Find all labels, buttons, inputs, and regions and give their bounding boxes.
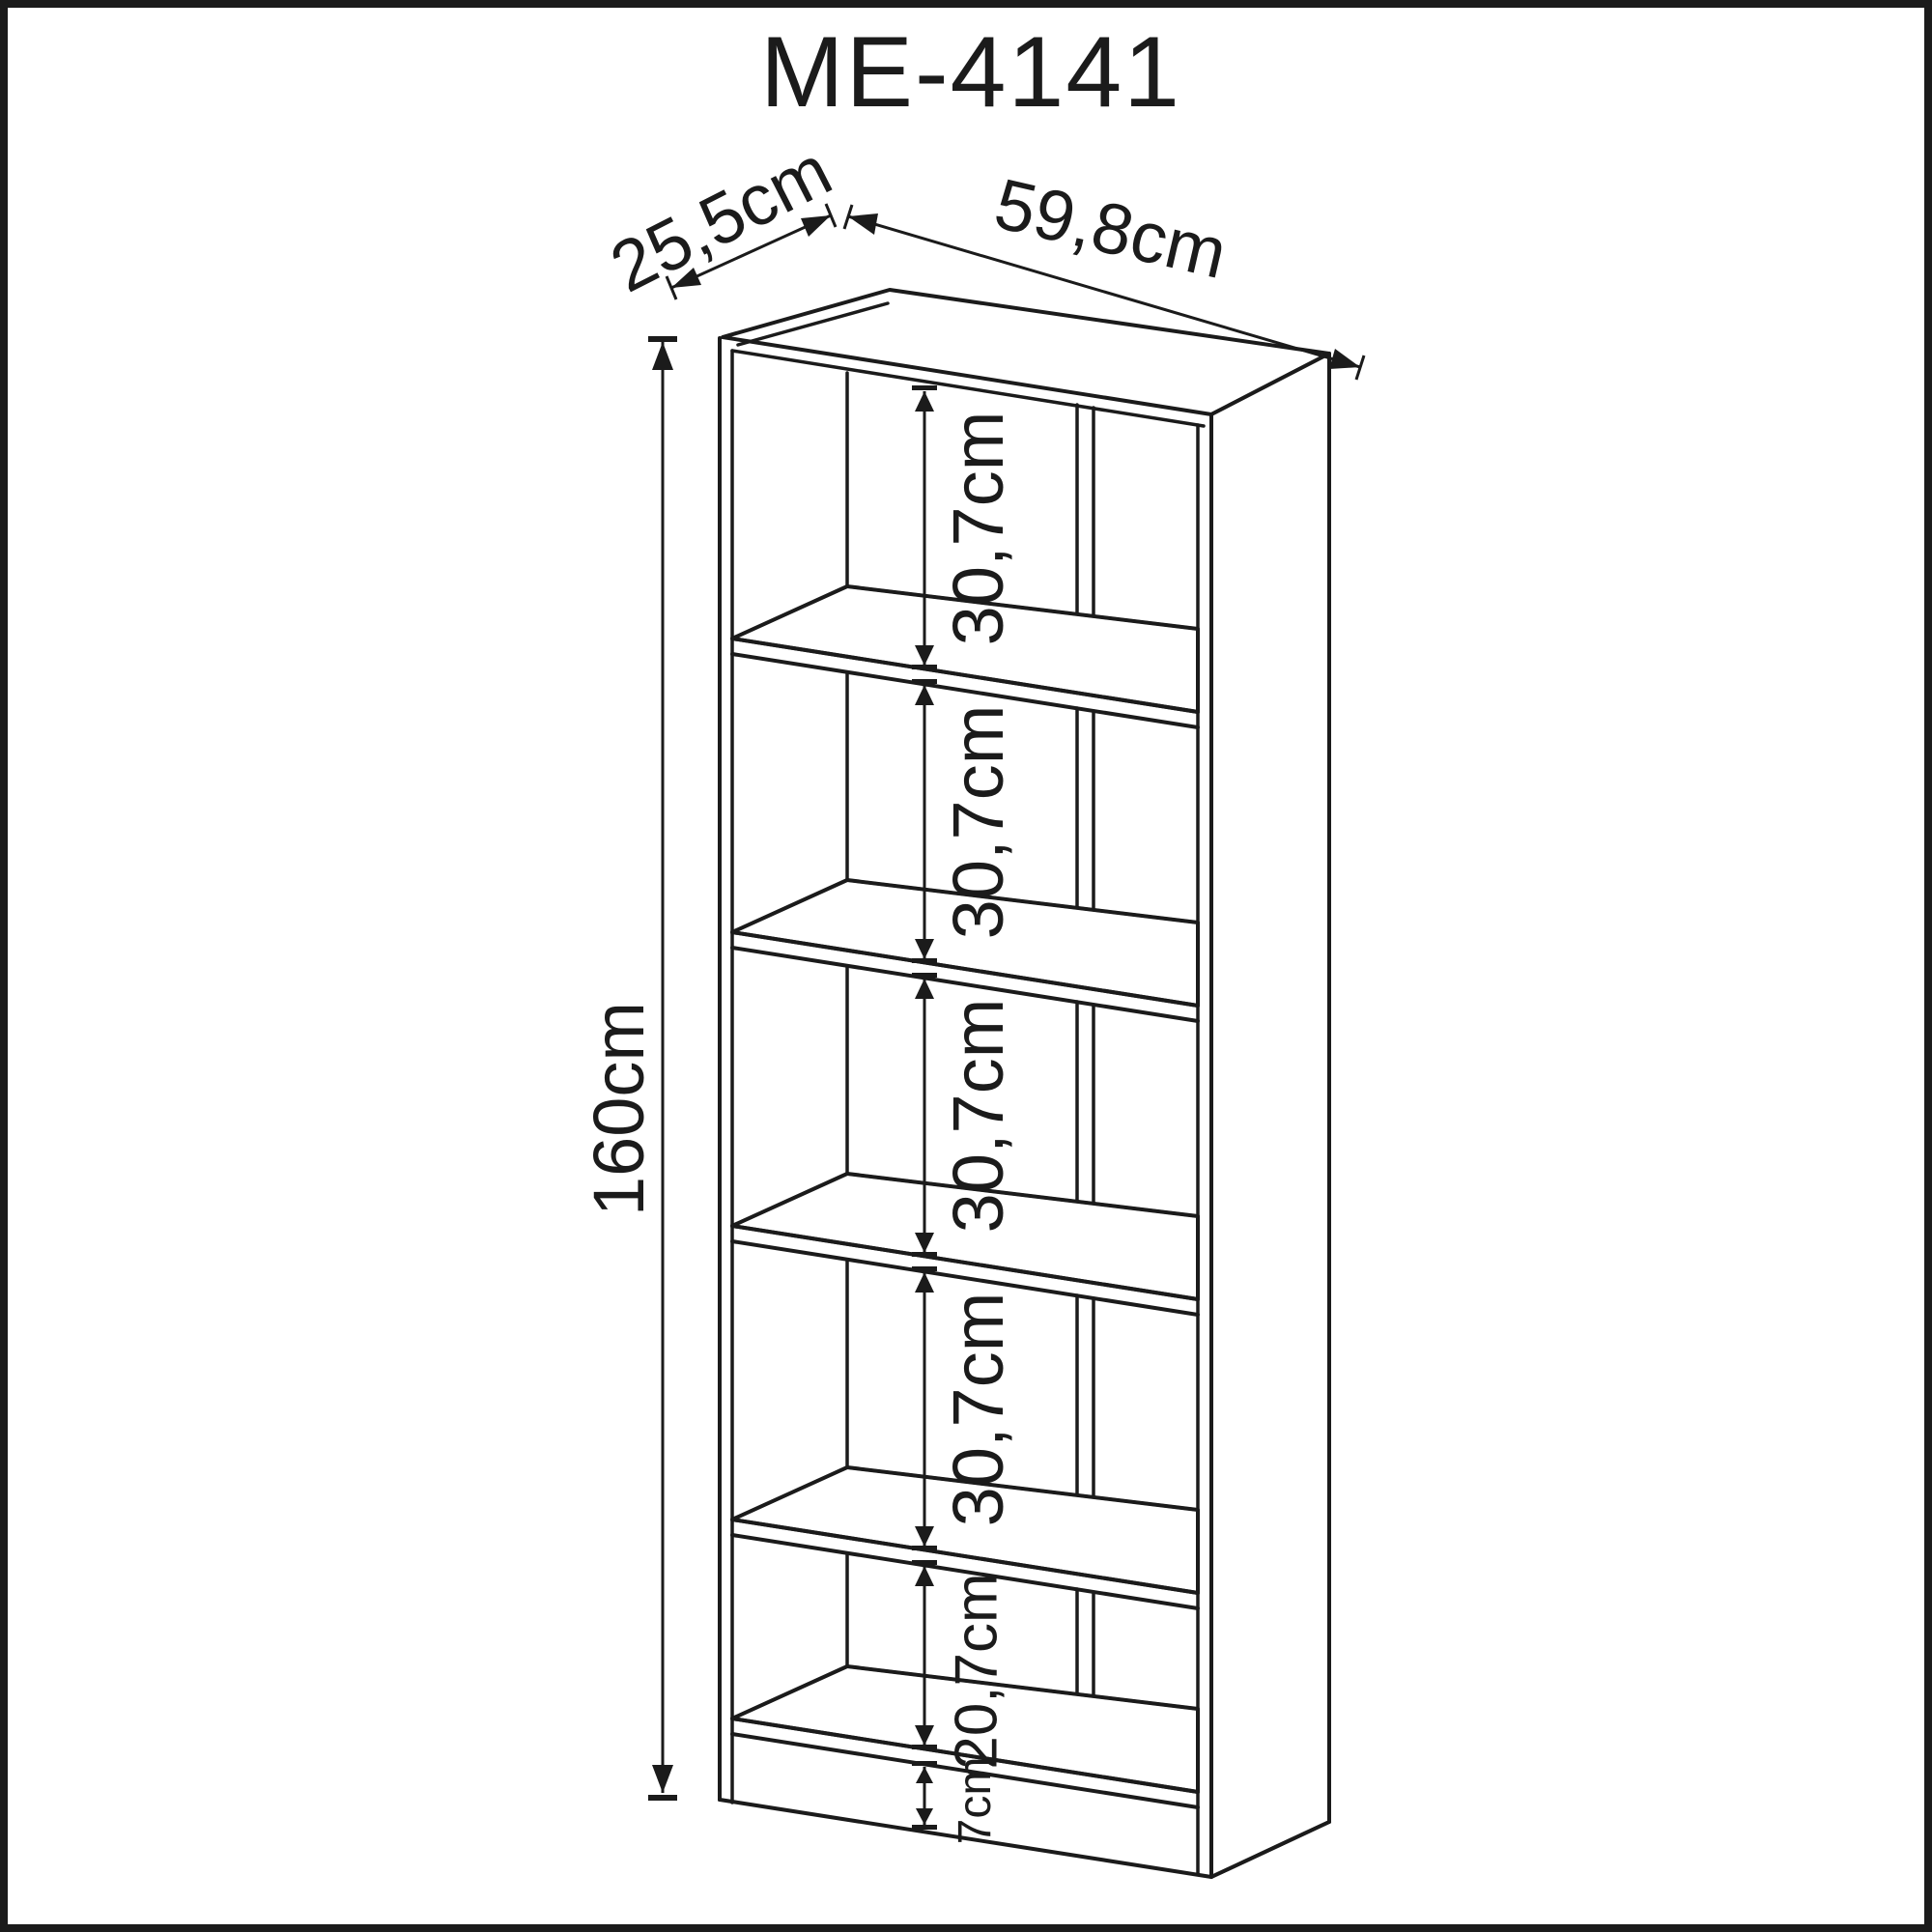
arrowhead	[916, 1808, 933, 1825]
dimension-tick	[648, 336, 677, 342]
arrowhead	[915, 979, 934, 999]
arrowhead	[848, 213, 878, 235]
arrowhead	[916, 1767, 933, 1783]
height-label: 160cm	[579, 1002, 659, 1216]
dimension-tick	[912, 385, 937, 390]
bay-label: 30,7cm	[938, 1293, 1018, 1527]
arrowhead	[652, 1765, 673, 1793]
dimension-tick	[912, 1266, 937, 1271]
right-side-surface	[1211, 354, 1329, 1877]
dimension-bay-5: 20,7cm	[912, 1560, 1010, 1770]
diagram-page: ME-4141	[0, 0, 1932, 1932]
model-title: ME-4141	[760, 16, 1181, 128]
width-label: 59,8cm	[987, 163, 1234, 294]
dimension-tick	[912, 1825, 937, 1830]
arrowhead	[652, 342, 673, 370]
arrowhead	[915, 685, 934, 705]
dimension-height: 160cm	[579, 336, 677, 1801]
arrowhead	[915, 391, 934, 412]
base-label: 7cm	[950, 1757, 1001, 1845]
dimension-tick	[912, 679, 937, 684]
bay-label: 30,7cm	[938, 999, 1018, 1234]
bookcase-drawing	[720, 290, 1329, 1877]
arrowhead	[1329, 349, 1360, 369]
dimension-depth: 25,5cm	[598, 129, 843, 307]
bookcase-dimension-diagram: ME-4141	[0, 0, 1932, 1932]
arrowhead	[915, 1272, 934, 1293]
right-side-panel	[1211, 354, 1329, 1877]
top-panel-surface	[723, 290, 1329, 414]
bay-label: 30,7cm	[938, 705, 1018, 940]
arrowhead	[915, 1566, 934, 1586]
dimension-tick	[912, 973, 937, 978]
dimension-tick	[648, 1795, 677, 1801]
dimension-tick	[912, 1761, 937, 1766]
dimension-tick	[912, 1560, 937, 1565]
bay-label: 20,7cm	[944, 1573, 1010, 1769]
bay-label: 30,7cm	[938, 412, 1018, 646]
depth-label: 25,5cm	[598, 129, 843, 307]
